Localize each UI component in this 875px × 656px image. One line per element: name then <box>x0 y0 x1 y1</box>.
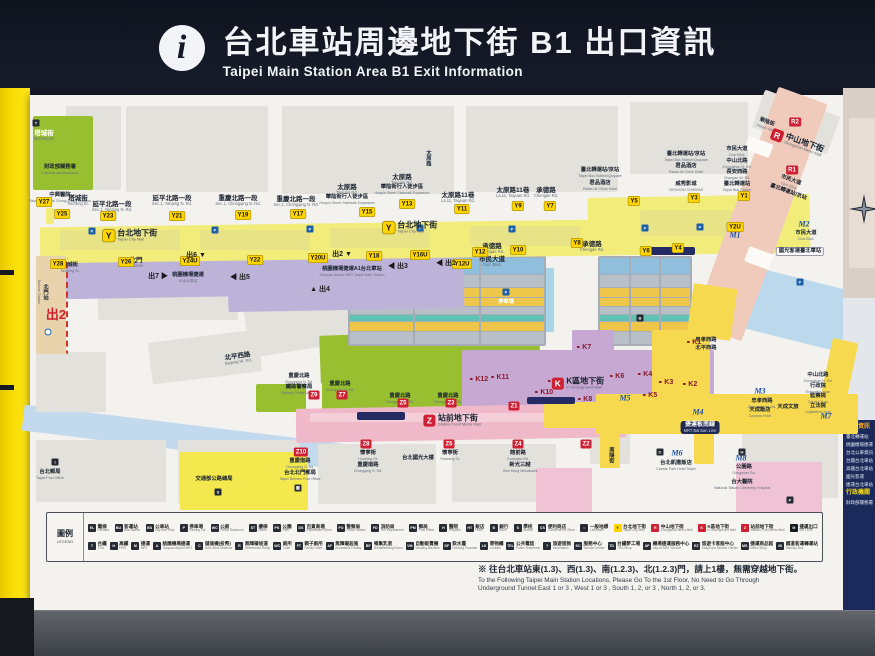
street-label: 國光客運臺北車站 <box>776 247 824 256</box>
legend-glyph-icon: LK <box>480 542 488 550</box>
adjacent-panel-row: 台鐵台北車站 <box>846 457 875 465</box>
street-label: 臺北轉運站Taipei Bus Station <box>723 182 752 192</box>
legend-item-en: TRA Shop <box>617 547 640 551</box>
legend-item-en: Station Front Metro Mall <box>751 529 785 533</box>
exit-marker-Y25: Y25 <box>55 210 70 219</box>
mall-logo-text: 站前地下街Station Front Metro Mall <box>438 415 481 428</box>
mall-logo-text: 台北地下街Taipei City Mall <box>117 230 157 243</box>
street-label-en: Chongqing S. Rd. <box>286 465 314 469</box>
exit-marker-出6 ▼: 出6 ▼ <box>184 250 208 260</box>
legend-item-en: Elevator <box>98 529 110 533</box>
street-label-zh: 南陽街 <box>607 447 613 463</box>
area-pinkbldg <box>536 468 592 512</box>
mall-name-en: K Underground Mall <box>566 386 604 391</box>
legend-item: LK寄物櫃Lockers <box>480 541 503 550</box>
r-mall-icon: R <box>651 524 659 532</box>
legend-item: DF飲水臺Drinking Fountain <box>443 541 477 550</box>
legend-item-text: 無障礙設施Accessible Facility <box>335 541 361 550</box>
y-mall-icon: Y <box>614 524 622 532</box>
z-exit-label: Z4 <box>512 440 523 449</box>
legend-item: FD消防局Fire Department <box>371 524 404 533</box>
y-exit-label: Y19 <box>236 211 251 220</box>
exit-marker-Y6: Y6 <box>640 247 651 256</box>
k-exit-dot <box>687 341 690 344</box>
legend-item-en: Service Center <box>584 547 605 551</box>
legend-item-text: 桃園機場捷運Taoyuan Airport MRT <box>163 541 193 550</box>
legend-item-en: Zhongshan Metro Mall <box>661 529 693 533</box>
legend-glyph-icon: DS <box>297 524 305 532</box>
area-green <box>33 116 93 190</box>
legend-item: Y台北地下街Taipei City Mall <box>614 524 646 533</box>
map-panel: Y台北地下街Taipei City MallY台北地下街Taipei City … <box>30 95 843 612</box>
legend-item-en: Airport MRT Service <box>653 547 690 551</box>
out-exit-label: ▲ 出4 <box>308 284 332 294</box>
street-label: 天成文旅 <box>777 405 798 411</box>
y-exit-label: Y12 <box>473 248 488 257</box>
exit-marker-Y3: Y3 <box>688 194 699 203</box>
k-exit-dot <box>659 381 662 384</box>
legend-item: HT飯店Hotel <box>466 524 485 533</box>
y-exit-label: Y5 <box>628 197 639 206</box>
legend-item: WC公廁Public Restroom <box>211 524 244 533</box>
legend-glyph-icon: S <box>514 524 522 532</box>
m-exit-label: M1 <box>727 230 742 241</box>
legend-item: H高鐵HSR <box>110 541 129 550</box>
legend-item-text: 捷運MRT <box>141 541 150 550</box>
legend-item-en: Accessible Facility <box>335 547 361 551</box>
z-mall-icon: Z <box>741 524 749 532</box>
legend-item-text: 警察局Police Station <box>346 524 366 533</box>
shadow-corner <box>0 598 34 656</box>
exit-marker-M6: M6 <box>669 448 684 459</box>
exit-marker-mrt <box>45 329 52 336</box>
street-label: 懷寧街Huaining St. <box>440 451 460 461</box>
page-title: 台北車站周邊地下街 B1 出口資訊 <box>223 17 717 62</box>
legend-glyph-icon: ○ <box>580 524 588 532</box>
k-exit-dot <box>578 398 581 401</box>
legend-glyph-icon: T <box>88 542 96 550</box>
exit-marker-Y4: Y4 <box>672 244 683 253</box>
legend-item-text: 悠遊卡客服中心EasyCard Service Center <box>702 541 738 550</box>
legend-item-en: Landmark <box>590 529 608 533</box>
exit-marker-▲ 出4: ▲ 出4 <box>308 284 332 294</box>
exit-marker-Y12: Y12 <box>473 248 488 257</box>
y-exit-label: Y11 <box>455 205 469 214</box>
street-label-zh: 台北國光大樓 <box>402 456 434 462</box>
legend-glyph-icon: P <box>180 524 188 532</box>
legend-item-text: 一般地標Landmark <box>590 524 608 533</box>
exit-marker-K7: K7 <box>577 342 593 352</box>
footnote: ※ 往台北車站東(1.3)、西(1.3)、南(1.2.3)、北(1.2.3)門，… <box>478 564 830 593</box>
legend-item: MS捷運商品館Metro Shop <box>741 541 773 550</box>
legend-item-text: 公共電話Public Telephone <box>516 541 540 550</box>
exit-marker-Z5: Z5 <box>397 399 408 408</box>
legend-item: ○一般地標Landmark <box>580 524 608 533</box>
street-label-en: Gongyuan Rd. <box>732 471 755 475</box>
exit-marker-M2: M2 <box>796 219 811 230</box>
platform-cell <box>481 307 544 314</box>
compass-icon <box>848 193 875 225</box>
adjacent-panel-row: 台北公車資訊 <box>846 449 875 457</box>
street-label-zh: 停車場 <box>498 300 514 306</box>
exit-marker-P: P <box>797 279 804 286</box>
exit-marker-H: H <box>739 449 746 456</box>
footnote-en: To the Following Taipei Main Station Loc… <box>478 577 830 594</box>
exit-marker-S: S <box>215 489 222 496</box>
mall-logo-text: 台北地下街Taipei City Mall <box>397 222 437 235</box>
legend-row-2: T台鐵TRAH高鐵HSRM捷運MRTA桃園機場捷運Taoyuan Airport… <box>88 541 818 550</box>
platform-cell <box>350 332 413 344</box>
street-label-en: Civic Blvd. <box>795 237 816 241</box>
legend-item-text: 寄物櫃Lockers <box>490 541 504 550</box>
street-label-en: Chongqing S. Rd. <box>354 469 382 473</box>
legend-item-text: 飲水臺Drinking Fountain <box>452 541 477 550</box>
platform-cell <box>661 298 690 307</box>
k-exit-label: K11 <box>495 372 511 382</box>
street-label: 重慶北路Chongqing N. Rd. <box>285 374 314 384</box>
exit-marker-P: P <box>787 497 794 504</box>
y-exit-label: Y13 <box>400 200 415 209</box>
legend-glyph-icon: BF <box>364 542 372 550</box>
k-exit-label: K4 <box>641 369 654 379</box>
panel-dash <box>0 270 14 275</box>
k-exit-label: K8 <box>581 394 594 404</box>
y-exit-label: Y20U <box>308 254 327 263</box>
street-label-en: Civic Blvd. <box>479 263 505 268</box>
exit-marker-Y8: Y8 <box>571 239 582 248</box>
legend-item: WC廁所Toilet <box>273 541 292 550</box>
area-navy <box>527 397 575 404</box>
k-exit-dot <box>535 391 538 394</box>
y-exit-label: Y26 <box>119 258 134 267</box>
legend-item-en: Hotel <box>475 529 484 533</box>
legend-item-en: K Underground Mall <box>707 529 735 533</box>
legend-glyph-icon: ST <box>249 524 257 532</box>
street-label: 重慶南路Chongqing S. Rd. <box>354 463 382 473</box>
street-label-en: Taoyuan Airport MRT Taipei Main Station <box>320 273 385 277</box>
legend-glyph-icon: EL <box>88 524 96 532</box>
exit-marker-Y22: Y22 <box>248 256 263 265</box>
exit-marker-Z3: Z3 <box>445 399 456 408</box>
parking-icon: P <box>307 226 314 233</box>
z-exit-label: Z10 <box>294 448 308 457</box>
legend-item-en: Public Restroom <box>220 529 243 533</box>
legend-item: PK公園Park <box>273 524 292 533</box>
legend-item-text: 捷運商品館Metro Shop <box>750 541 773 550</box>
y-exit-label: Y7 <box>544 202 555 211</box>
platform-cell <box>661 258 690 274</box>
exit-marker-T: T <box>33 120 40 127</box>
area-block <box>36 352 106 412</box>
m-mall-icon: M <box>790 524 798 532</box>
street-label: 太原路 <box>424 150 430 166</box>
legend-item-en: HSR <box>119 547 128 551</box>
exit-marker-Z10: Z10 <box>294 448 308 457</box>
legend-title-zh: 圖例 <box>57 529 73 539</box>
legend-item: R中山地下街Zhongshan Metro Mall <box>651 524 692 533</box>
street-label-en: VIESHOW CINEMAS <box>669 188 703 192</box>
legend-glyph-icon: WC <box>211 524 219 532</box>
legend-item-en: Public Telephone <box>516 547 540 551</box>
legend-item: C儲值機(投幣)Add-Value Machine <box>195 541 232 550</box>
k-exit-dot <box>491 376 494 379</box>
adjacent-yellow-panel <box>0 88 30 644</box>
legend-glyph-icon: BU <box>115 524 123 532</box>
exit-marker-Y23: Y23 <box>101 212 116 221</box>
street-label: 承德路Chengde Rd. <box>580 241 604 253</box>
street-label: 臺北轉運站/京站Taipei Bus Station/Qsquare <box>664 152 708 162</box>
m-exit-label: M5 <box>617 393 632 404</box>
platform-cell <box>481 275 544 287</box>
exit-marker-◀ 出5: ◀ 出5 <box>228 272 252 282</box>
y-exit-label: Y25 <box>55 210 70 219</box>
street-label: 中山北路Zhongshan N. Rd. <box>722 159 751 169</box>
legend-item-text: 台鐵夢工場TRA Shop <box>617 541 640 550</box>
legend-item-en: Toilet <box>283 547 292 551</box>
street-label: 臺北轉運站/京站Taipei Bus Station/Qsquare <box>578 168 622 178</box>
exit-marker-M3: M3 <box>752 386 767 397</box>
legend-item: DS百貨商場Department Store <box>297 524 332 533</box>
poi-icon: B <box>637 315 644 322</box>
z-exit-label: Z1 <box>508 402 519 411</box>
legend-item: P停車場Parking Lot <box>180 524 206 533</box>
legend-item-en: Taoyuan Airport MRT <box>163 547 193 551</box>
platform-cell <box>631 288 660 297</box>
legend-item-text: 無障礙坡道Wheelchair Ramp <box>245 541 270 550</box>
legend-glyph-icon: PO <box>337 524 345 532</box>
z-exit-label: Z6 <box>443 440 454 449</box>
platform-cell <box>600 258 629 274</box>
exit-marker-P: P <box>642 225 649 232</box>
legend-item: TD台鐵夢工場TRA Shop <box>608 541 640 550</box>
poi-icon: 郵 <box>295 485 302 492</box>
platform-cell <box>350 315 413 321</box>
street-label: 北門站Beimen Station <box>37 280 47 304</box>
exit-marker-出7 ▶: 出7 ▶ <box>146 271 170 281</box>
legend-item-text: 高鐵HSR <box>119 541 128 550</box>
legend-glyph-icon: PK <box>273 524 281 532</box>
k-exit-label: K1 <box>690 337 703 347</box>
y-exit-label: Y16U <box>410 251 429 260</box>
street-label: 台北國光大樓 <box>402 456 434 462</box>
legend-item-en: Stairs <box>258 529 267 533</box>
out-exit-label: ◀ 出3 <box>386 261 410 271</box>
poi-icon: P <box>787 497 794 504</box>
mall-logo-k: KK區地下街K Underground Mall <box>552 378 604 391</box>
k-exit-label: K3 <box>662 377 675 387</box>
legend-item-text: 郵局Post Office <box>419 524 435 533</box>
y-exit-label: Y22 <box>248 256 263 265</box>
exit-marker-K4: K4 <box>638 369 654 379</box>
poi-icon: i <box>52 459 59 466</box>
legend-item: BU客運站Bus Station <box>115 524 141 533</box>
legend-item-en: Police Station <box>346 529 366 533</box>
exit-marker-K2: K2 <box>683 379 699 389</box>
exit-marker-Y20U: Y20U <box>308 254 327 263</box>
street-label-en: A1台北車站 <box>172 279 204 283</box>
exit-marker-M4: M4 <box>690 407 705 418</box>
platform-cell <box>415 315 478 321</box>
m-exit-label: M4 <box>690 407 705 418</box>
exit-marker-Y17: Y17 <box>291 210 306 219</box>
parking-icon: P <box>89 228 96 235</box>
exit-marker-P: P <box>697 224 704 231</box>
k-exit-dot <box>548 380 551 383</box>
y-exit-label: Y18 <box>367 252 382 261</box>
street-label: 台北北門郵局Taipei Beimen Post Office <box>279 471 320 481</box>
parking-icon: P <box>797 279 804 286</box>
legend-glyph-icon: C <box>195 542 203 550</box>
legend-glyph-icon: H <box>439 524 447 532</box>
street-label-zh: 北門站 <box>41 280 47 304</box>
exit-marker-Z1: Z1 <box>508 402 519 411</box>
legend-title: 圖例 LEGEND <box>47 513 84 561</box>
legend-item-text: 儲值機(投幣)Add-Value Machine <box>205 541 233 550</box>
adjacent-panel-row: 財政部關務署 <box>846 499 875 507</box>
exit-marker-Y26: Y26 <box>119 258 134 267</box>
platform-cell <box>631 258 660 274</box>
parking-icon: P <box>509 226 516 233</box>
legend-item-text: 中山地下街Zhongshan Metro Mall <box>661 524 693 533</box>
street-label-en: Shin Kong Mitsukoshi <box>503 469 538 473</box>
legend-item-text: 機場捷運服務中心Airport MRT Service <box>653 541 690 550</box>
street-label-en: Taipei Post Office <box>36 476 64 480</box>
area-ymrt <box>544 402 600 428</box>
exit-marker-P: P <box>212 227 219 234</box>
adjacent-panel-header2: 行政機關 <box>846 489 875 499</box>
street-label-en: Huaining St. <box>440 457 460 461</box>
exit-marker-Y1: Y1 <box>738 192 749 201</box>
y-exit-label: Y1 <box>738 192 749 201</box>
legend-item-text: 公園Park <box>282 524 291 533</box>
legend-item: A桃園機場捷運Taoyuan Airport MRT <box>153 541 192 550</box>
m-exit-label: M7 <box>818 411 833 422</box>
legend-item: H醫院Hospital <box>439 524 460 533</box>
street-label: 館前路Guanqian Rd. <box>507 451 529 461</box>
street-label: 君品酒店Palais de Chine Hotel <box>583 181 618 191</box>
y-exit-label: Y4 <box>672 244 683 253</box>
legend-item-text: 銀行Bank <box>499 524 508 533</box>
street-label: 市民大道Civic Blvd. <box>795 231 816 241</box>
legend-item: BF哺集乳室Breastfeeding Room <box>364 541 403 550</box>
street-label: 懷寧街Huaining St. <box>358 451 378 461</box>
platform-cell <box>661 307 690 314</box>
street-label-en: Tacheng St. <box>67 202 89 207</box>
exit-marker-B: B <box>637 315 644 322</box>
legend-item: M捷運出口MRT Exit <box>790 524 818 533</box>
legend-item-en: Breastfeeding Room <box>374 547 403 551</box>
street-label: 桃園機場捷運A1台北車站Taoyuan Airport MRT Taipei M… <box>320 267 385 277</box>
k-exit-label: K6 <box>613 371 626 381</box>
k-exit-dot <box>470 378 473 381</box>
exit-marker-P: P <box>89 228 96 235</box>
legend-item: T台鐵TRA <box>88 541 107 550</box>
legend-item-text: 停車場Parking Lot <box>189 524 205 533</box>
legend-item-text: 客運站Bus Station <box>124 524 140 533</box>
legend-item-en: Wheelchair Ramp <box>245 547 270 551</box>
out-exit-label: 出6 ▼ <box>184 250 208 260</box>
mall-logo-y: Y台北地下街Taipei City Mall <box>103 230 158 243</box>
legend-item-text: 旅遊諮詢Information <box>553 541 571 550</box>
legend-item-text: 捷運出口MRT Exit <box>799 524 817 533</box>
k-exit-dot <box>577 346 580 349</box>
legend-item-en: EasyCard Service Center <box>702 547 738 551</box>
adjacent-panel-row: 國光客運 <box>846 473 875 481</box>
legend-item-text: 服務中心Service Center <box>584 541 605 550</box>
area-block <box>126 106 268 192</box>
mall-logo-y: Y台北地下街Taipei City Mall <box>383 222 438 235</box>
exit-marker-郵: 郵 <box>295 485 302 492</box>
k-exit-dot <box>683 383 686 386</box>
platform-cell <box>600 315 629 321</box>
area-ymrt <box>694 432 714 464</box>
platform-cell <box>631 307 660 314</box>
street-label: 南陽街 <box>607 447 613 463</box>
legend-glyph-icon: AP <box>643 542 651 550</box>
sign-header: i 台北車站周邊地下街 B1 出口資訊 Taipei Main Station … <box>0 0 875 95</box>
k-exit-label: K5 <box>646 390 659 400</box>
exit-marker-Y13: Y13 <box>400 200 415 209</box>
legend-item-text: 國道客運轉運站Intercity Bus <box>786 541 818 550</box>
street-label: 交通部公路總局 <box>195 477 232 483</box>
k-exit-label: K2 <box>686 379 699 389</box>
street-label-en: Huaining St. <box>358 457 378 461</box>
area-purpleband <box>228 254 465 312</box>
street-label: 塔城街Tacheng St. <box>33 130 55 142</box>
exit-marker-Z9: Z9 <box>308 391 319 400</box>
legend-glyph-icon: H <box>110 542 118 550</box>
platform-cell <box>600 298 629 307</box>
legend-glyph-icon: IB <box>776 542 784 550</box>
legend-item: M捷運MRT <box>131 541 150 550</box>
exit-marker-Y27: Y27 <box>37 198 52 207</box>
street-label-en: Taipei Bus Station/Qsquare <box>578 174 622 178</box>
exit-marker-K12: K12 <box>470 374 490 384</box>
street-label: 台北凱撒飯店Caesar Park Hotel Taipei <box>656 461 696 471</box>
exit-marker-P: P <box>503 289 510 296</box>
legend-item-en: Bus Station <box>124 529 140 533</box>
out-exit-label: 出2 ▼ <box>330 249 354 259</box>
legend-glyph-icon: A <box>153 542 161 550</box>
k-exit-dot <box>643 394 646 397</box>
m-exit-label: M2 <box>796 219 811 230</box>
street-label-en: Guanqian Rd. <box>507 457 529 461</box>
exit-marker-Y16U: Y16U <box>410 251 429 260</box>
street-label: 君品酒店Palais de Chine Hotel <box>669 164 704 174</box>
y-exit-label: Y17 <box>291 210 306 219</box>
street-label-en: Tacheng St. <box>33 137 55 142</box>
legend-glyph-icon: PM <box>409 524 417 532</box>
street-label-en: Sec.1, Chongqing N. Rd. <box>273 203 318 208</box>
exit-marker-K1: K1 <box>687 337 703 347</box>
area-yband <box>46 208 54 224</box>
platform-cell <box>481 315 544 321</box>
legend-item-en: Bank <box>499 529 508 533</box>
legend-glyph-icon: B <box>490 524 498 532</box>
area-ymrt <box>687 283 738 341</box>
street-label-en: National Taiwan University Hospital <box>714 486 770 490</box>
legend-glyph-icon: FD <box>371 524 379 532</box>
y-exit-label: Y27 <box>37 198 52 207</box>
street-label: 重慶南路Chongqing S. Rd. <box>286 459 314 469</box>
legend-item-en: TRA <box>98 547 107 551</box>
area-navy <box>357 412 405 420</box>
exit-marker-Y28: Y28 <box>51 260 66 269</box>
platform-cell <box>600 288 629 297</box>
m-exit-label: M6 <box>669 448 684 459</box>
z-exit-label: Z8 <box>360 440 371 449</box>
street-label: 市民大道Civic Blvd. <box>726 147 747 157</box>
